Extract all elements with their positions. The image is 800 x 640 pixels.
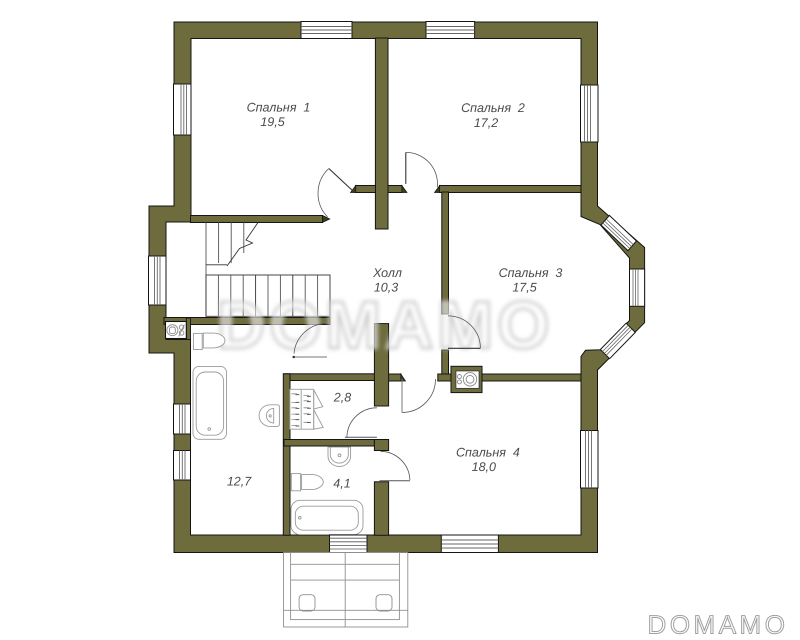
svg-text:17,2: 17,2: [474, 116, 498, 130]
svg-text:DOMAMO: DOMAMO: [648, 610, 789, 640]
svg-text:Спальня 3: Спальня 3: [499, 266, 563, 280]
svg-text:Спальня 4: Спальня 4: [456, 446, 520, 460]
svg-text:4,1: 4,1: [333, 477, 350, 491]
svg-text:Спальня 1: Спальня 1: [247, 101, 311, 115]
svg-text:18,0: 18,0: [472, 460, 496, 474]
svg-text:2,8: 2,8: [333, 391, 351, 405]
svg-text:DOMAMO: DOMAMO: [217, 288, 554, 363]
svg-text:12,7: 12,7: [227, 475, 252, 489]
svg-text:10,3: 10,3: [374, 281, 398, 295]
svg-text:19,5: 19,5: [260, 115, 284, 129]
svg-text:Спальня 2: Спальня 2: [461, 101, 525, 115]
svg-text:17,5: 17,5: [512, 281, 536, 295]
svg-text:Холл: Холл: [372, 266, 402, 280]
